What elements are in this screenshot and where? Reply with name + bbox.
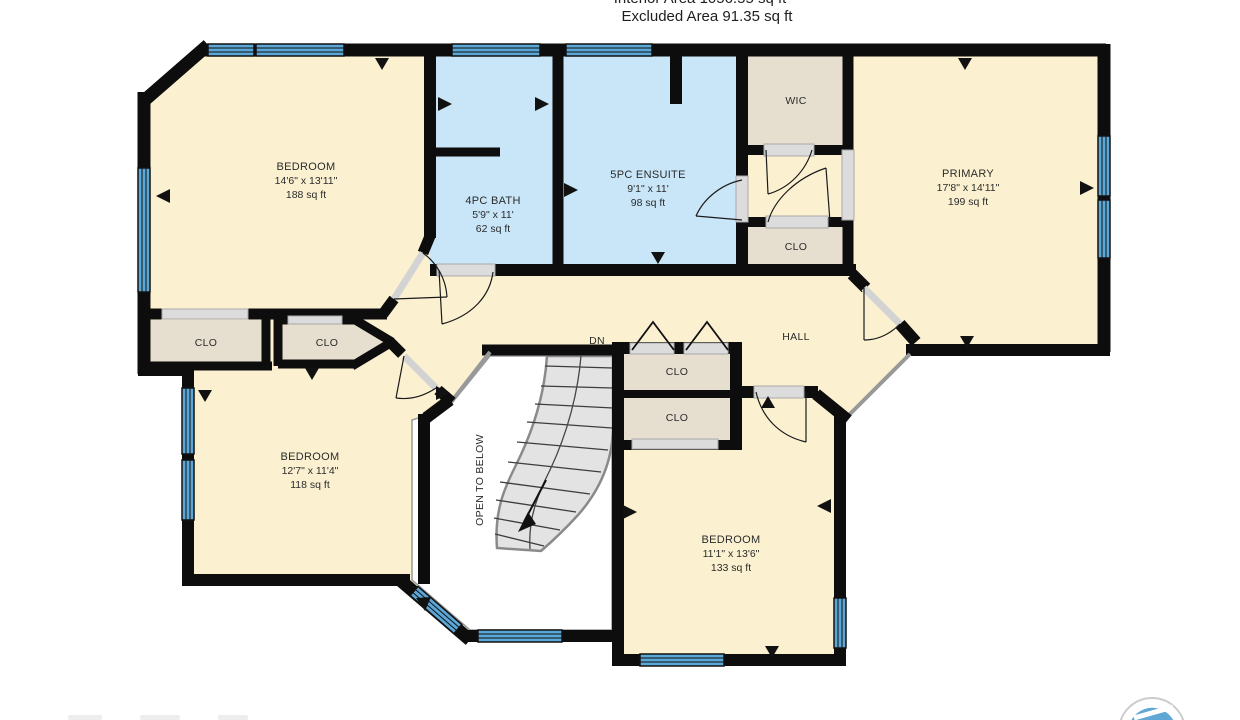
closet-primary-label: CLO <box>785 241 808 253</box>
watermark-fragment <box>68 715 248 720</box>
bedroom2-name: BEDROOM <box>281 451 340 463</box>
window <box>478 630 562 642</box>
window <box>256 44 344 56</box>
bath-name: 4PC BATH <box>465 195 520 207</box>
open-to-below-label: OPEN TO BELOW <box>474 434 486 526</box>
bedroom3-name: BEDROOM <box>702 534 761 546</box>
window <box>182 388 194 454</box>
bath-area: 62 sq ft <box>476 223 511 235</box>
excluded-area-label: Excluded Area 91.35 sq ft <box>622 8 794 25</box>
bath-dims: 5'9" x 11' <box>472 209 513 221</box>
window <box>208 44 254 56</box>
wic-label: WIC <box>785 95 806 107</box>
window <box>182 460 194 520</box>
window <box>1098 136 1110 196</box>
brand-logo <box>1119 698 1185 720</box>
window <box>566 44 652 56</box>
closet-mid-1-label: CLO <box>666 366 689 378</box>
ensuite-dims: 9'1" x 11' <box>627 183 668 195</box>
primary-dims: 17'8" x 14'11" <box>937 182 1000 194</box>
floor-plan: Interior Area 1056.55 sq ft Excluded Are… <box>0 0 1240 720</box>
bedroom2-dims: 12'7" x 11'4" <box>282 465 339 477</box>
ensuite-name: 5PC ENSUITE <box>610 169 685 181</box>
primary-name: PRIMARY <box>942 168 994 180</box>
hall-label: HALL <box>782 331 809 343</box>
bedroom2-area: 118 sq ft <box>290 479 330 491</box>
ensuite-area: 98 sq ft <box>631 197 666 209</box>
primary-area: 199 sq ft <box>948 196 988 208</box>
room-bath-floor <box>430 44 558 270</box>
closet-left-1-label: CLO <box>195 337 218 349</box>
window <box>452 44 540 56</box>
window <box>834 598 846 648</box>
closet-left-2-label: CLO <box>316 337 339 349</box>
interior-area-label: Interior Area 1056.55 sq ft <box>614 0 787 7</box>
bedroom3-area: 133 sq ft <box>711 562 751 574</box>
bedroom1-area: 188 sq ft <box>286 189 326 201</box>
dn-label: DN <box>589 335 605 347</box>
bedroom1-dims: 14'6" x 13'11" <box>275 175 338 187</box>
window <box>640 654 724 666</box>
bedroom1-name: BEDROOM <box>277 161 336 173</box>
bedroom3-dims: 11'1" x 13'6" <box>703 548 760 560</box>
closet-mid-2-label: CLO <box>666 412 689 424</box>
window <box>1098 200 1110 258</box>
room-ensuite-floor <box>558 44 742 270</box>
window <box>138 168 150 292</box>
